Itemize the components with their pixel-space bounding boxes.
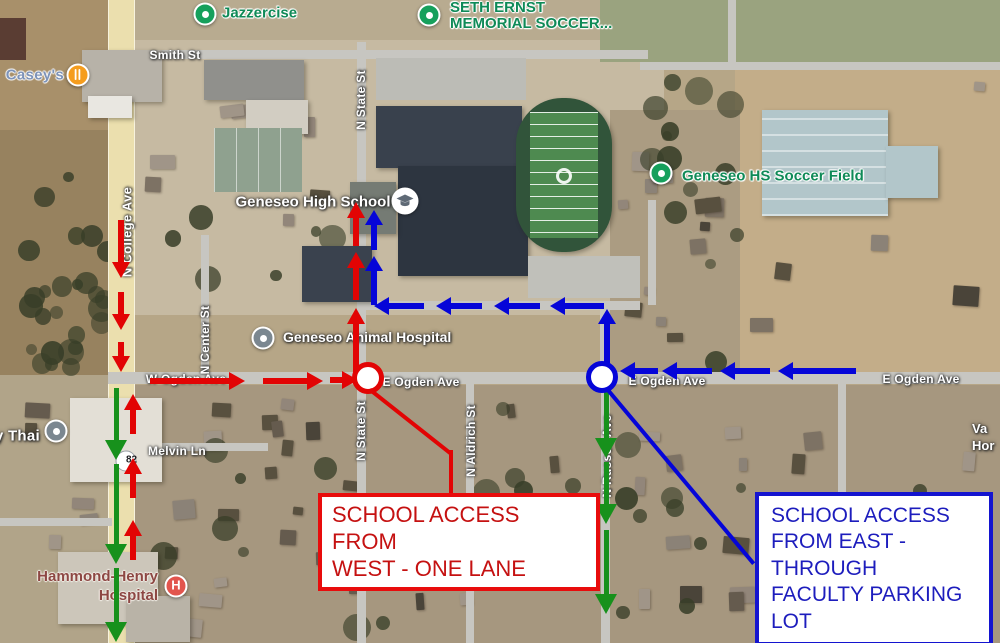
east-junction-marker <box>586 361 618 393</box>
route-arrow-shaft <box>353 268 359 300</box>
route-arrow-shaft <box>263 378 307 384</box>
route-arrow-shaft <box>735 368 770 374</box>
route-arrow-head <box>112 356 130 372</box>
route-arrow-shaft <box>677 368 712 374</box>
route-arrow-head <box>307 372 323 390</box>
route-arrow-shaft <box>114 568 119 622</box>
route-arrow-head <box>598 309 616 324</box>
route-arrow-head <box>436 297 451 315</box>
map-canvas[interactable]: Smith St N State St N College Ave N Cent… <box>0 0 1000 643</box>
route-arrow-head <box>124 394 142 410</box>
route-arrow-head <box>105 544 127 564</box>
route-arrow-shaft <box>389 303 424 309</box>
route-arrow-shaft <box>451 303 482 309</box>
route-arrow-shaft <box>509 303 540 309</box>
route-arrow-shaft <box>565 303 604 309</box>
west-access-callout: SCHOOL ACCESS FROM WEST - ONE LANE <box>318 493 600 591</box>
route-arrow-shaft <box>371 225 377 250</box>
route-arrow-head <box>105 622 127 642</box>
west-callout-leader-vertical <box>449 450 453 496</box>
route-arrow-head <box>595 438 617 458</box>
west-junction-marker <box>352 362 384 394</box>
route-arrow-head <box>720 362 735 380</box>
route-arrow-head <box>365 256 383 271</box>
east-access-callout: SCHOOL ACCESS FROM EAST - THROUGH FACULT… <box>755 492 993 643</box>
route-arrow-shaft <box>118 342 124 356</box>
route-arrow-head <box>347 308 365 324</box>
route-arrow-head <box>229 372 245 390</box>
route-arrow-shaft <box>604 392 609 438</box>
route-arrow-head <box>550 297 565 315</box>
route-arrow-head <box>347 202 365 218</box>
route-arrow-head <box>778 362 793 380</box>
route-arrow-head <box>124 520 142 536</box>
route-arrow-shaft <box>118 220 124 262</box>
route-arrow-head <box>112 262 130 278</box>
route-arrow-shaft <box>353 218 359 246</box>
route-arrow-shaft <box>793 368 856 374</box>
route-arrow-head <box>105 440 127 460</box>
route-arrow-shaft <box>604 530 609 594</box>
route-arrow-shaft <box>371 271 377 305</box>
route-arrow-shaft <box>114 388 119 440</box>
route-arrow-shaft <box>604 324 610 363</box>
route-arrow-shaft <box>635 368 658 374</box>
route-arrow-shaft <box>330 377 342 383</box>
route-arrow-head <box>365 210 383 225</box>
route-arrow-head <box>124 458 142 474</box>
route-arrow-head <box>347 252 365 268</box>
route-arrow-head <box>620 362 635 380</box>
route-arrow-shaft <box>130 536 136 560</box>
route-arrow-shaft <box>604 462 609 504</box>
route-arrow-shaft <box>130 410 136 434</box>
route-arrow-shaft <box>150 378 229 384</box>
route-arrow-head <box>494 297 509 315</box>
route-arrow-head <box>595 594 617 614</box>
route-arrow-head <box>112 314 130 330</box>
route-arrow-shaft <box>130 474 136 498</box>
route-arrow-shaft <box>114 464 119 544</box>
route-arrow-shaft <box>118 292 124 314</box>
route-arrow-head <box>662 362 677 380</box>
